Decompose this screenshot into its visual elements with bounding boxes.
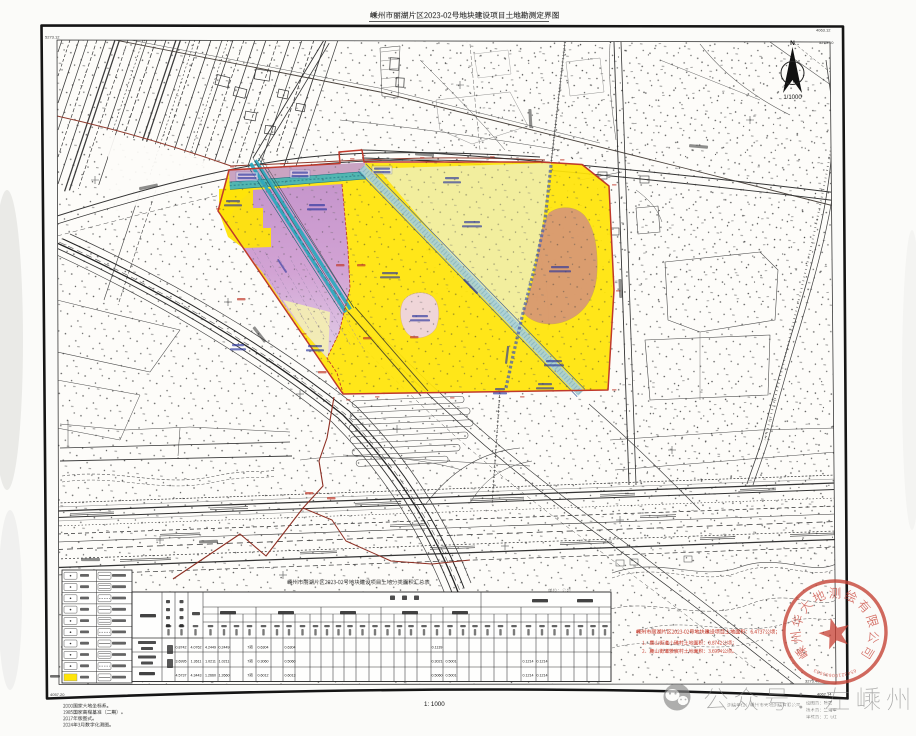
svg-text:7项: 7项: [247, 660, 253, 664]
svg-text:0.6013: 0.6013: [285, 674, 296, 678]
svg-text:1: 1000: 1: 1000: [424, 701, 445, 708]
svg-text:4057.20: 4057.20: [50, 692, 65, 697]
svg-text:1.0211: 1.0211: [205, 660, 216, 664]
svg-text:0.1139: 0.1139: [432, 646, 443, 650]
svg-text:0.3021: 0.3021: [432, 660, 443, 664]
svg-text:5273.12: 5273.12: [45, 35, 60, 40]
svg-text:1.2660: 1.2660: [205, 674, 216, 678]
svg-text:3.6995: 3.6995: [176, 660, 187, 664]
svg-text:7项: 7项: [247, 646, 253, 650]
svg-text:0.1214: 0.1214: [537, 674, 548, 678]
svg-text:0.3060: 0.3060: [258, 660, 269, 664]
svg-text:0.1214: 0.1214: [523, 660, 534, 664]
svg-text:N: N: [790, 40, 795, 47]
svg-text:0.5001: 0.5001: [446, 674, 457, 678]
svg-text:0.6304: 0.6304: [258, 646, 269, 650]
svg-text:0.5001: 0.5001: [446, 660, 457, 664]
svg-text:4.2449: 4.2449: [205, 646, 216, 650]
svg-text:0.8742: 0.8742: [176, 646, 187, 650]
svg-text:1.2660: 1.2660: [219, 674, 230, 678]
svg-text:0.2449: 0.2449: [219, 646, 230, 650]
svg-text:4063.12: 4063.12: [816, 28, 831, 33]
svg-text:5273.10: 5273.10: [819, 40, 834, 45]
svg-text:0.6012: 0.6012: [258, 674, 269, 678]
svg-text:4.5737: 4.5737: [176, 674, 187, 678]
svg-text:0.1214: 0.1214: [537, 660, 548, 664]
svg-text:1/1000: 1/1000: [783, 95, 802, 101]
svg-text:0.5060: 0.5060: [285, 660, 296, 664]
svg-text:4.0762: 4.0762: [191, 646, 202, 650]
svg-text:1.3611: 1.3611: [191, 660, 202, 664]
svg-text:1.0211: 1.0211: [219, 660, 230, 664]
svg-text:7项: 7项: [247, 674, 253, 678]
svg-text:4062.14: 4062.14: [817, 692, 832, 697]
svg-text:0.5060: 0.5060: [432, 674, 443, 678]
svg-text:0.1214: 0.1214: [523, 674, 534, 678]
svg-text:4.3443: 4.3443: [191, 674, 202, 678]
svg-text:0.6304: 0.6304: [285, 646, 296, 650]
